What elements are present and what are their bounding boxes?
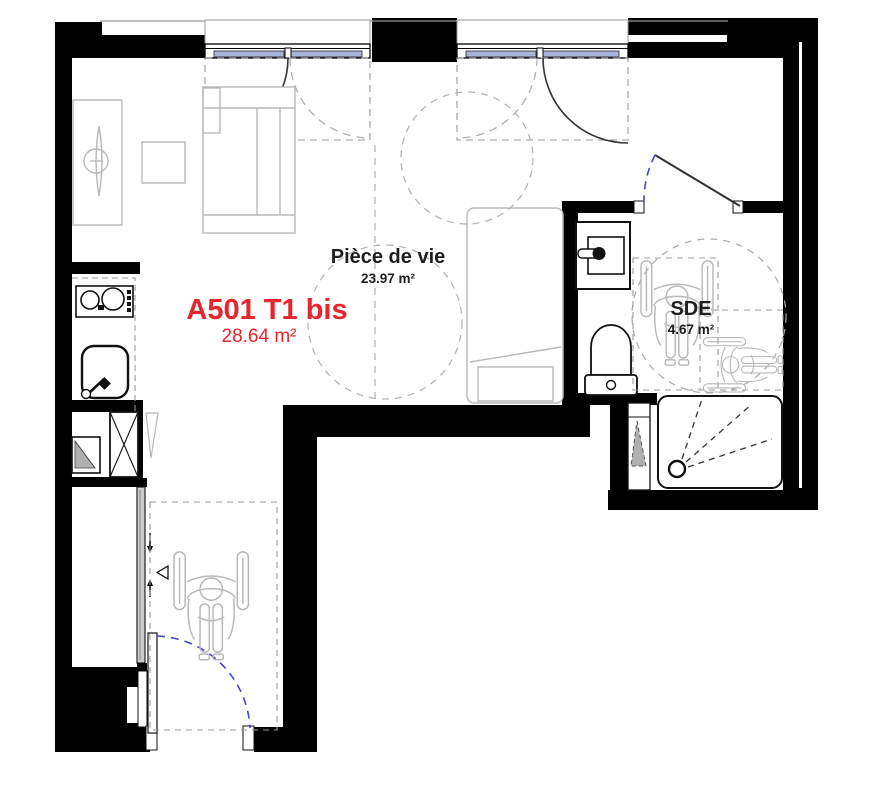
technical-shafts: [72, 412, 158, 477]
shower-screen: [628, 403, 650, 490]
shower: [658, 396, 782, 488]
window-right: [457, 20, 628, 140]
turning-circle-entry: [401, 92, 533, 224]
shaft-door-leaf: [146, 413, 158, 458]
walls: [55, 18, 818, 752]
sliding-direction-arrows: [147, 533, 153, 597]
sde-door-leaf: [655, 155, 740, 206]
shower-head: [669, 461, 685, 477]
wheelchair-corridor: [174, 552, 248, 660]
window-glass: [291, 51, 362, 57]
wheelchair-sde-side: [703, 338, 782, 392]
window-glass: [466, 51, 536, 57]
labels: Pièce de vie 23.97 m² A501 T1 bis 28.64 …: [186, 246, 714, 347]
sde-door-swing: [644, 155, 655, 203]
window-glass: [214, 51, 284, 57]
entrance-door: [146, 633, 254, 750]
side-table: [142, 142, 185, 183]
apartment-id: A501 T1 bis: [186, 294, 347, 326]
washbasin: [576, 222, 630, 289]
toilet: [585, 325, 637, 395]
entrance-door-swing: [157, 636, 250, 728]
window-glass: [543, 51, 619, 57]
sde-door: [634, 155, 743, 213]
cooktop: [76, 286, 133, 317]
window-recess-dashed: [457, 58, 628, 140]
desk: [73, 100, 122, 225]
room-name-living: Pièce de vie: [331, 246, 446, 268]
floor-plan-page: Pièce de vie 23.97 m² A501 T1 bis 28.64 …: [0, 0, 884, 800]
room-area-sde: 4.67 m²: [668, 322, 715, 337]
apartment-area: 28.64 m²: [222, 326, 297, 347]
floor-plan-drawing: Pièce de vie 23.97 m² A501 T1 bis 28.64 …: [0, 0, 884, 800]
sofa-cabinet: [467, 208, 563, 403]
bed: [203, 87, 295, 233]
slide-triangle-marker: [157, 566, 168, 579]
party-wall-seam: [799, 42, 802, 488]
room-area-living: 23.97 m²: [361, 271, 416, 286]
room-name-sde: SDE: [670, 298, 711, 320]
entrance-door-leaf: [148, 633, 157, 733]
kitchen-sink: [82, 346, 129, 399]
furniture: [73, 87, 563, 403]
